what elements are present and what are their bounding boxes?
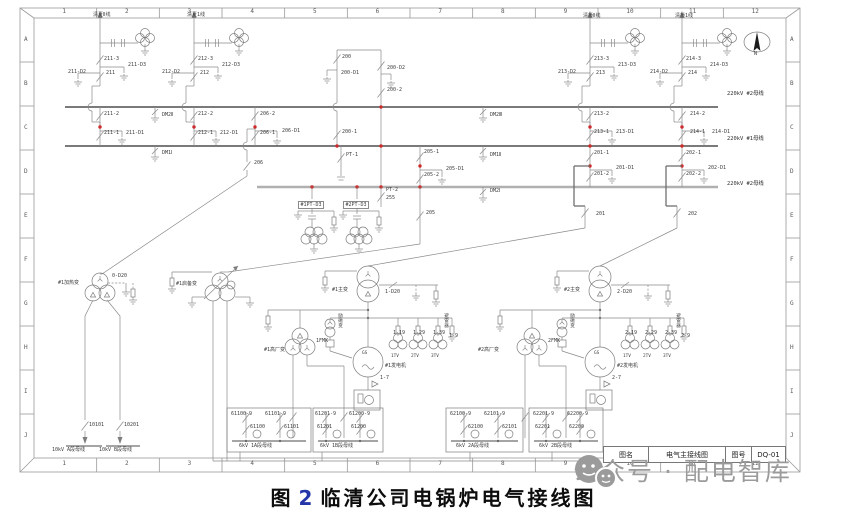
grid-row-label: J (24, 433, 28, 439)
diagram-label: 清桥Ⅱ线 (583, 14, 600, 19)
diagram-label: 0-D20 (112, 274, 127, 279)
diagram-label: 220kV #2母线 (727, 182, 764, 187)
grid-col-label: 11 (689, 9, 696, 15)
grid-col-label: 7 (438, 461, 442, 467)
diagram-label: 255 (386, 196, 395, 201)
diagram-label: 62200 (569, 425, 584, 430)
grid-col-label: 3 (188, 9, 192, 15)
diagram-label: 1FMK (316, 339, 328, 344)
diagram-label: 6kV 2A段母线 (456, 444, 489, 449)
diagram-label: 206-2 (260, 112, 275, 117)
diagram-label: 206-1 (260, 131, 275, 136)
diagram-label: 202-1 (686, 151, 701, 156)
diagram-label: #1加热变 (58, 281, 79, 286)
diagram-label: #2PT-D3 (343, 201, 369, 209)
diagram-label: 62100-9 (450, 412, 471, 417)
figure-caption-title: 临清公司电锅炉电气接线图 (320, 486, 596, 510)
diagram-label: 212-D2 (162, 70, 180, 75)
grid-row-label: A (24, 37, 28, 43)
grid-row-label: I (790, 389, 794, 395)
diagram-label: 6kV 1A段母线 (239, 444, 272, 449)
diagram-label: N (754, 52, 757, 57)
diagram-label: 212-3 (198, 57, 213, 62)
grid-row-label: C (790, 125, 794, 131)
diagram-label: 62201-9 (533, 412, 554, 417)
diagram-label: 212-D3 (222, 63, 240, 68)
diagram-label: 205-1 (424, 150, 439, 155)
diagram-label: 214-D2 (650, 70, 668, 75)
grid-col-label: 2 (125, 461, 129, 467)
diagram-label: 202-2 (686, 172, 701, 177)
grid-row-label: B (24, 81, 28, 87)
diagram-label: 212 (200, 71, 209, 76)
diagram-label: 1-39 (433, 331, 445, 336)
diagram-label: 10201 (124, 423, 139, 428)
diagram-label: #1启备变 (176, 282, 197, 287)
diagram-label: 213-1 (594, 130, 609, 135)
diagram-label: 2TV (643, 355, 651, 359)
grid-col-label: 9 (564, 9, 568, 15)
diagram-label: 205 (426, 211, 435, 216)
diagram-label: 214 (688, 71, 697, 76)
diagram-label: 10kV A段母线 (52, 448, 85, 453)
diagram-label: #2高厂变 (478, 348, 499, 353)
grid-row-label: B (790, 81, 794, 87)
diagram-label: 2FMK (548, 339, 560, 344)
grid-row-label: D (790, 169, 794, 175)
grid-row-label: F (790, 257, 794, 263)
diagram-label: 220kV #1母线 (727, 137, 764, 142)
diagram-label: 202 (688, 212, 697, 217)
diagram-label: 1-D20 (385, 290, 400, 295)
diagram-label: PT-1 (346, 153, 358, 158)
diagram-label: 61201-9 (315, 412, 336, 417)
diagram-label: 2-29 (645, 331, 657, 336)
diagram-label: 206-D1 (282, 129, 300, 134)
grid-col-label: 7 (438, 9, 442, 15)
diagram-label: 2-19 (625, 331, 637, 336)
grid-col-label: 2 (125, 9, 129, 15)
diagram-label: 214-2 (690, 112, 705, 117)
diagram-label: #1高厂变 (264, 348, 285, 353)
diagram-label: 61200-9 (349, 412, 370, 417)
diagram-label: 2TV (411, 355, 419, 359)
grid-row-label: C (24, 125, 28, 131)
diagram-label: 避雷器 (443, 313, 448, 328)
diagram-label: 1-7 (380, 376, 389, 381)
grid-row-label: E (24, 213, 28, 219)
diagram-label: 213-3 (594, 57, 609, 62)
diagram-label: 61100 (250, 425, 265, 430)
diagram-label: DM2Ⅰ (490, 189, 501, 194)
diagram-label: 214-D3 (710, 63, 728, 68)
diagram-label: DM2Ⅱ (162, 113, 174, 118)
diagram-label: 1-19 (393, 331, 405, 336)
diagram-label: 61200 (351, 425, 366, 430)
diagram-label: #1主变 (332, 288, 348, 293)
grid-row-label: G (24, 301, 28, 307)
diagram-label: #2主变 (564, 288, 580, 293)
grid-col-label: 4 (250, 9, 254, 15)
diagram-label: #2发电机 (617, 364, 638, 369)
diagram-label: GS (362, 352, 367, 356)
diagram-label: 1-9 (449, 334, 458, 339)
diagram-label: 10101 (89, 423, 104, 428)
diagram-label: 62201 (535, 425, 550, 430)
diagram-label: 61100-9 (231, 412, 252, 417)
grid-row-label: H (790, 345, 794, 351)
grid-row-label: F (24, 257, 28, 263)
diagram-label: DM2Ⅲ (490, 113, 502, 118)
diagram-label: 62100 (468, 425, 483, 430)
grid-col-label: 10 (626, 9, 633, 15)
grid-col-label: 12 (752, 9, 759, 15)
grid-col-label: 4 (250, 461, 254, 467)
diagram-label: 214-3 (686, 57, 701, 62)
watermark: 公众号 · 配电智库 (573, 452, 792, 488)
diagram-label: 200 (342, 55, 351, 60)
diagram-label: 6kV 2B段母线 (539, 444, 572, 449)
grid-row-label: J (790, 433, 794, 439)
grid-col-label: 9 (564, 461, 568, 467)
diagram-label: 200-1 (342, 130, 357, 135)
figure-caption-number: 2 (299, 486, 316, 510)
diagram-label: #1PT-D3 (298, 201, 324, 209)
grid-row-label: A (790, 37, 794, 43)
grid-col-label: 6 (376, 9, 380, 15)
diagram-label: 211 (106, 71, 115, 76)
diagram-label: 211-1 (104, 131, 119, 136)
diagram-label: 201-2 (594, 172, 609, 177)
diagram-label: 1TV (391, 355, 399, 359)
drawing-sheet: 清夏Ⅱ线清夏1线清桥Ⅱ线清桥1线211-3211-D3211-D2211211-… (0, 0, 845, 512)
diagram-label: 213-2 (594, 112, 609, 117)
diagram-label: 201-1 (594, 151, 609, 156)
grid-col-label: 1 (62, 9, 66, 15)
diagram-label: 212-D1 (220, 131, 238, 136)
grid-row-label: H (24, 345, 28, 351)
diagram-label: #1发电机 (385, 364, 406, 369)
diagram-label: 200-D2 (387, 66, 405, 71)
diagram-label: 62101-9 (484, 412, 505, 417)
diagram-label: 201 (596, 212, 605, 217)
diagram-label: DM1Ⅱ (490, 153, 502, 158)
diagram-label: 1TV (623, 355, 631, 359)
diagram-label: 212-1 (198, 131, 213, 136)
diagram-label: 205-2 (424, 173, 439, 178)
diagram-label: 61101 (284, 425, 299, 430)
diagram-label: 213-D3 (618, 63, 636, 68)
grid-col-label: 8 (501, 9, 505, 15)
diagram-label: 201-D1 (616, 166, 634, 171)
diagram-label: 214-1 (690, 130, 705, 135)
diagram-label: DM1Ⅰ (162, 151, 173, 156)
diagram-label: 清夏Ⅱ线 (93, 13, 110, 18)
grid-row-label: I (24, 389, 28, 395)
diagram-label: PT-2 (386, 188, 398, 193)
diagram-label: 6kV 1B段母线 (320, 444, 353, 449)
diagram-label: 211-3 (104, 57, 119, 62)
diagram-label: 212-2 (198, 112, 213, 117)
grid-col-label: 8 (501, 461, 505, 467)
diagram-label: GS (594, 352, 599, 356)
diagram-label: 214-D1 (712, 130, 730, 135)
figure-caption-label: 图 (271, 486, 294, 510)
diagram-label: 2-9 (681, 334, 690, 339)
diagram-label: 2-D20 (617, 290, 632, 295)
diagram-label: 200-D1 (341, 71, 359, 76)
schematic-labels: 清夏Ⅱ线清夏1线清桥Ⅱ线清桥1线211-3211-D3211-D2211211-… (0, 0, 845, 512)
diagram-label: 避雷器 (675, 313, 680, 328)
grid-col-label: 6 (376, 461, 380, 467)
wechat-icon (573, 452, 619, 494)
diagram-label: 62101 (502, 425, 517, 430)
diagram-label: 205-D1 (446, 167, 464, 172)
diagram-label: 励磁变 (337, 313, 342, 328)
diagram-label: 213-D2 (558, 70, 576, 75)
grid-col-label: 3 (188, 461, 192, 467)
diagram-label: 211-D2 (68, 70, 86, 75)
grid-row-label: G (790, 301, 794, 307)
grid-col-label: 5 (313, 9, 317, 15)
diagram-label: 206 (254, 161, 263, 166)
diagram-label: 213 (596, 71, 605, 76)
grid-col-label: 5 (313, 461, 317, 467)
diagram-label: 202-D1 (708, 166, 726, 171)
diagram-label: 61201 (317, 425, 332, 430)
grid-col-label: 1 (62, 461, 66, 467)
diagram-label: 220kV #2母线 (727, 92, 764, 97)
diagram-label: 200-2 (387, 88, 402, 93)
diagram-label: 1-29 (413, 331, 425, 336)
diagram-label: 211-D1 (126, 131, 144, 136)
grid-row-label: E (790, 213, 794, 219)
diagram-label: 10kV B段母线 (99, 448, 132, 453)
diagram-label: 213-D1 (616, 130, 634, 135)
diagram-label: 61101-9 (265, 412, 286, 417)
diagram-label: 2-7 (612, 376, 621, 381)
diagram-label: 3TV (663, 355, 671, 359)
diagram-label: 211-D3 (128, 63, 146, 68)
diagram-label: 励磁变 (569, 313, 574, 328)
diagram-label: 62200-9 (567, 412, 588, 417)
diagram-label: 2-39 (665, 331, 677, 336)
diagram-label: 211-2 (104, 112, 119, 117)
diagram-label: 3TV (431, 355, 439, 359)
grid-row-label: D (24, 169, 28, 175)
